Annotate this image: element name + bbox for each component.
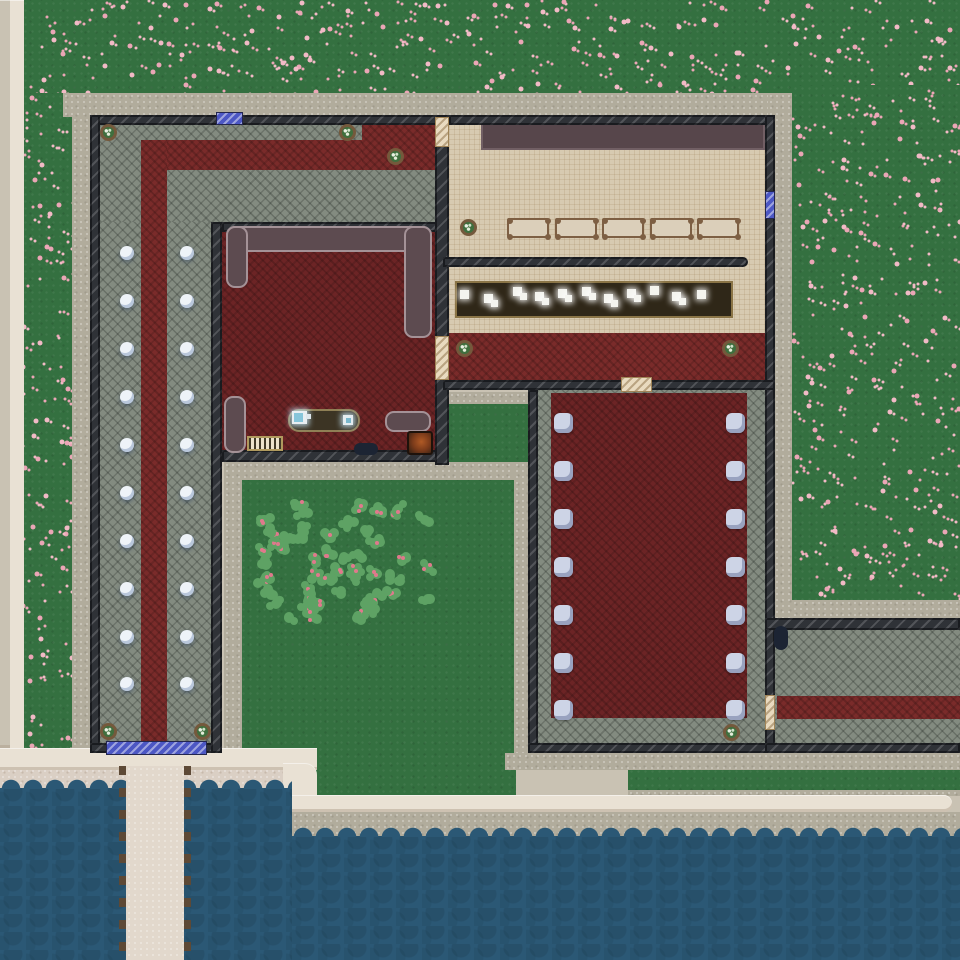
sofa-top[interactable]: [226, 226, 432, 252]
sofa-bottom-right[interactable]: [385, 411, 431, 432]
food-tray-cluster: [558, 289, 559, 290]
wall-lamp[interactable]: [120, 294, 134, 308]
chair-left[interactable]: [554, 605, 573, 625]
table-leg: [640, 234, 646, 240]
wall-lamp[interactable]: [180, 486, 194, 500]
table-leg: [602, 218, 608, 224]
wall-lamp[interactable]: [180, 582, 194, 596]
food-tray-cluster: [672, 292, 673, 293]
food-tray-cluster: [484, 294, 485, 295]
sofa-left-arm[interactable]: [226, 226, 248, 288]
chair-right[interactable]: [726, 557, 745, 577]
wall-lamp[interactable]: [120, 390, 134, 404]
table-leg: [545, 234, 551, 240]
wall-lamp[interactable]: [180, 677, 194, 691]
wall-lamp[interactable]: [120, 677, 134, 691]
wall-lamp[interactable]: [180, 438, 194, 452]
table-leg: [640, 218, 646, 224]
potted-plant[interactable]: [460, 219, 477, 236]
table-leg: [507, 218, 513, 224]
food-tray: [491, 300, 498, 307]
potted-plant[interactable]: [339, 124, 356, 141]
wall-lamp[interactable]: [120, 630, 134, 644]
chair-right[interactable]: [726, 461, 745, 481]
radio[interactable]: [343, 415, 353, 425]
wall-lamp[interactable]: [180, 294, 194, 308]
table-leg: [688, 234, 694, 240]
dining-table[interactable]: [650, 218, 692, 238]
table-leg: [602, 234, 608, 240]
sofa-bottom-left[interactable]: [224, 396, 246, 453]
table-leg: [507, 234, 513, 240]
chair-right[interactable]: [726, 605, 745, 625]
potted-plant[interactable]: [722, 340, 739, 357]
food-tray: [634, 295, 641, 302]
potted-plant[interactable]: [100, 124, 117, 141]
chair-left[interactable]: [554, 700, 573, 720]
potted-plant[interactable]: [723, 724, 740, 741]
table-leg: [545, 218, 551, 224]
tv-aerial: [306, 414, 311, 419]
chair-left[interactable]: [554, 557, 573, 577]
potted-plant[interactable]: [456, 340, 473, 357]
food-tray: [697, 290, 706, 299]
wall-lamp[interactable]: [120, 246, 134, 260]
pet-bowl[interactable]: [354, 443, 378, 455]
dining-table[interactable]: [697, 218, 739, 238]
tv[interactable]: [292, 411, 307, 424]
prison-map-view: [0, 0, 960, 960]
table-leg: [735, 218, 741, 224]
food-tray: [565, 295, 572, 302]
objects-layer: [0, 0, 960, 960]
food-tray: [589, 293, 596, 300]
screenshot-root: [0, 0, 960, 960]
table-leg: [697, 234, 703, 240]
radio-speaker: [346, 418, 351, 423]
sofa-right-arm[interactable]: [404, 226, 432, 338]
dining-table[interactable]: [507, 218, 549, 238]
table-leg: [555, 234, 561, 240]
bin[interactable]: [774, 626, 788, 650]
radiator[interactable]: [247, 436, 283, 451]
wall-lamp[interactable]: [120, 438, 134, 452]
chair-left[interactable]: [554, 413, 573, 433]
wall-lamp[interactable]: [180, 390, 194, 404]
chair-right[interactable]: [726, 700, 745, 720]
fireplace[interactable]: [407, 431, 433, 455]
chair-left[interactable]: [554, 653, 573, 673]
food-tray-cluster: [460, 290, 461, 291]
wall-lamp[interactable]: [180, 630, 194, 644]
dining-table[interactable]: [602, 218, 644, 238]
wall-lamp[interactable]: [120, 342, 134, 356]
food-tray-cluster: [650, 286, 651, 287]
table-leg: [650, 218, 656, 224]
table-leg: [650, 234, 656, 240]
food-tray: [650, 286, 659, 295]
potted-plant[interactable]: [194, 723, 211, 740]
table-leg: [697, 218, 703, 224]
wall-lamp[interactable]: [180, 534, 194, 548]
chair-right[interactable]: [726, 509, 745, 529]
food-tray-cluster: [604, 294, 605, 295]
wall-lamp[interactable]: [120, 534, 134, 548]
table-leg: [593, 234, 599, 240]
food-tray-cluster: [697, 290, 698, 291]
wall-lamp[interactable]: [120, 582, 134, 596]
food-tray-cluster: [627, 289, 628, 290]
food-tray: [679, 298, 686, 305]
chair-right[interactable]: [726, 413, 745, 433]
food-tray: [542, 298, 549, 305]
food-tray-cluster: [535, 292, 536, 293]
wall-lamp[interactable]: [180, 246, 194, 260]
food-tray: [460, 290, 469, 299]
table-leg: [735, 234, 741, 240]
potted-plant[interactable]: [387, 148, 404, 165]
wall-lamp[interactable]: [120, 486, 134, 500]
food-tray-cluster: [582, 287, 583, 288]
food-tray: [611, 300, 618, 307]
chair-left[interactable]: [554, 461, 573, 481]
food-tray: [520, 293, 527, 300]
table-leg: [555, 218, 561, 224]
wall-lamp[interactable]: [180, 342, 194, 356]
chair-left[interactable]: [554, 509, 573, 529]
chair-right[interactable]: [726, 653, 745, 673]
food-tray-cluster: [513, 287, 514, 288]
dining-table[interactable]: [555, 218, 597, 238]
potted-plant[interactable]: [100, 723, 117, 740]
table-leg: [593, 218, 599, 224]
table-leg: [688, 218, 694, 224]
tv-screen: [294, 413, 303, 422]
